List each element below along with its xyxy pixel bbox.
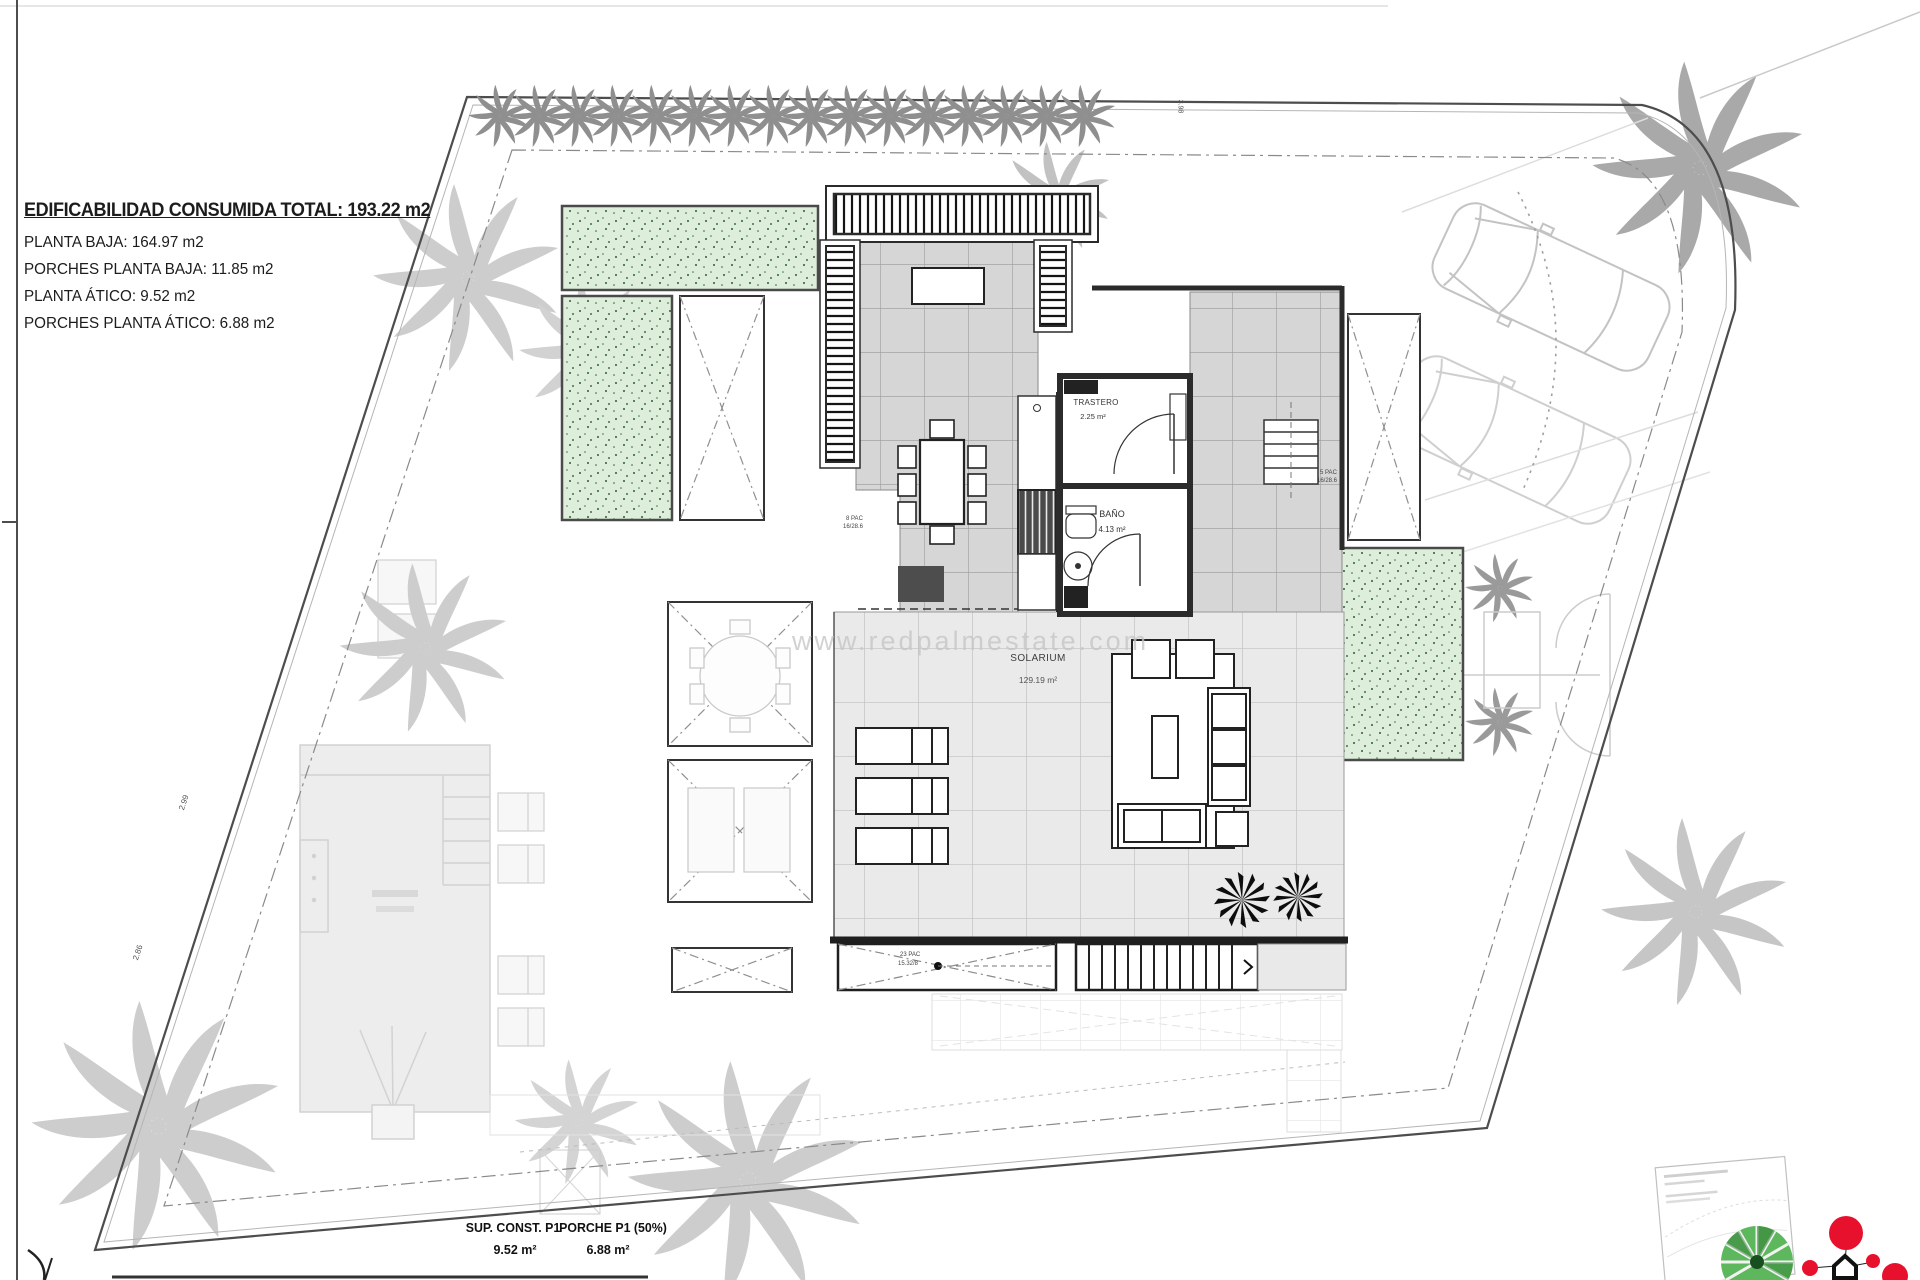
car-icon	[1382, 341, 1642, 539]
exterior-stairs	[1076, 944, 1346, 990]
room-area-bano: 4.13 m²	[1088, 525, 1136, 534]
stair-label: 16/28.6	[843, 524, 863, 530]
room-area-solarium: 129.19 m²	[1004, 675, 1072, 685]
lawn-a	[562, 206, 818, 290]
solarium-tiles	[834, 612, 1344, 940]
side-table	[1216, 812, 1248, 846]
room-label-trastero: TRASTERO	[1068, 398, 1124, 407]
summary-col2-value: 6.88 m²	[548, 1243, 668, 1257]
lawn-b	[562, 296, 672, 520]
watermark: www.redpalmestate.com	[792, 626, 1149, 657]
edificability-line: PLANTA BAJA: 164.97 m2	[24, 229, 430, 256]
logo-house-icon	[1834, 1256, 1856, 1278]
sun-loungers	[856, 728, 948, 864]
pool	[300, 745, 490, 1139]
building	[820, 186, 1348, 990]
edificability-line: PORCHES PLANTA BAJA: 11.85 m2	[24, 256, 430, 283]
planter	[898, 566, 944, 602]
summary-col2-label: PORCHE P1 (50%)	[551, 1220, 675, 1235]
room-area-trastero: 2.25 m²	[1068, 412, 1118, 421]
north-arrow-fragment	[28, 1250, 44, 1280]
parking-cars	[1382, 118, 1710, 560]
coffee-table	[1152, 716, 1178, 778]
stair-label: 8 PAC	[846, 516, 863, 522]
logo-balloons-icon	[1802, 1216, 1908, 1280]
room-label-bano: BAÑO	[1090, 509, 1134, 519]
edificability-title-block: EDIFICABILIDAD CONSUMIDA TOTAL: 193.22 m…	[24, 200, 430, 337]
stair-label: 5 PAC	[1320, 470, 1337, 476]
skylight	[912, 268, 984, 304]
edificability-line: PLANTA ÁTICO: 9.52 m2	[24, 283, 430, 310]
pergola-label: 23 PAC	[900, 952, 920, 958]
lawn-c	[1336, 548, 1463, 760]
edificability-total: EDIFICABILIDAD CONSUMIDA TOTAL: 193.22 m…	[24, 200, 430, 222]
palm-band	[468, 85, 1115, 148]
pergola-label: 15.32/8	[898, 961, 918, 967]
edificability-line: PORCHES PLANTA ÁTICO: 6.88 m2	[24, 310, 430, 337]
floor-plan-canvas: EDIFICABILIDAD CONSUMIDA TOTAL: 193.22 m…	[0, 0, 1920, 1280]
lounge-set	[1112, 640, 1250, 848]
dim-label: 3.98	[1176, 100, 1183, 114]
stair-label: 16/28.6	[1317, 478, 1337, 484]
entrance-pergola	[838, 944, 1056, 990]
